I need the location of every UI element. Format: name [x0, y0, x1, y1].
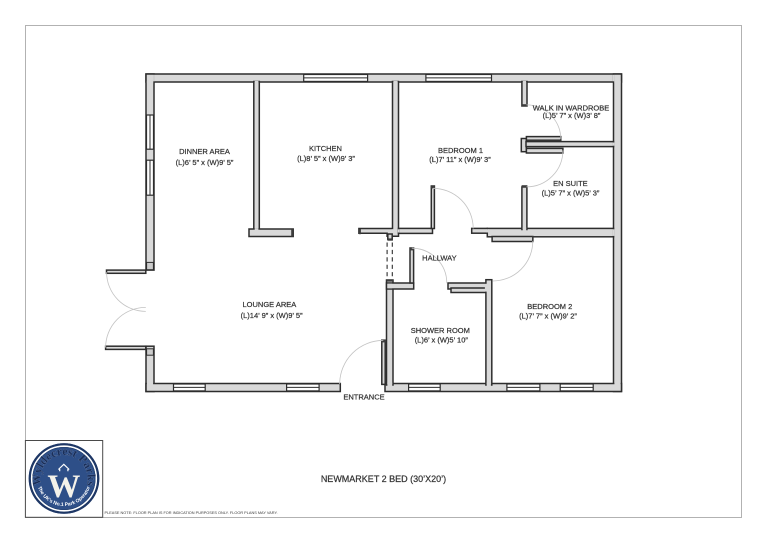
svg-text:(L)6’ x (W)5’ 10”: (L)6’ x (W)5’ 10” — [415, 336, 469, 345]
svg-text:ENTRANCE: ENTRANCE — [343, 393, 384, 402]
svg-text:LOUNGE AREA: LOUNGE AREA — [243, 300, 297, 309]
svg-text:(L)8’ 5” x (W)9’ 3”: (L)8’ 5” x (W)9’ 3” — [297, 154, 355, 163]
svg-text:PLEASE NOTE: FLOOR PLAN IS FOR: PLEASE NOTE: FLOOR PLAN IS FOR INDICATIO… — [105, 511, 278, 515]
svg-text:HALLWAY: HALLWAY — [422, 254, 456, 263]
svg-text:(L)7’ 11” x (W)9’ 3”: (L)7’ 11” x (W)9’ 3” — [429, 155, 491, 164]
svg-text:(L)6’ 5” x (W)9’ 5”: (L)6’ 5” x (W)9’ 5” — [176, 158, 234, 167]
svg-text:DINNER AREA: DINNER AREA — [179, 147, 230, 156]
svg-text:EN SUITE: EN SUITE — [553, 179, 588, 188]
svg-text:(L)5’ 7” x (W)3’ 8”: (L)5’ 7” x (W)3’ 8” — [543, 111, 601, 120]
svg-text:BEDROOM 1: BEDROOM 1 — [438, 146, 483, 155]
svg-text:(L)5’ 7” x (W)5’ 3”: (L)5’ 7” x (W)5’ 3” — [542, 188, 600, 197]
svg-text:NEWMARKET 2 BED (30’X20’): NEWMARKET 2 BED (30’X20’) — [321, 474, 446, 484]
svg-text:SHOWER ROOM: SHOWER ROOM — [411, 326, 470, 335]
svg-text:(L)7’ 7” x (W)9’ 2”: (L)7’ 7” x (W)9’ 2” — [519, 312, 577, 321]
svg-text:BEDROOM 2: BEDROOM 2 — [527, 302, 572, 311]
svg-text:KITCHEN: KITCHEN — [309, 144, 342, 153]
svg-text:(L)14’ 9” x (W)9’ 5”: (L)14’ 9” x (W)9’ 5” — [241, 311, 303, 320]
